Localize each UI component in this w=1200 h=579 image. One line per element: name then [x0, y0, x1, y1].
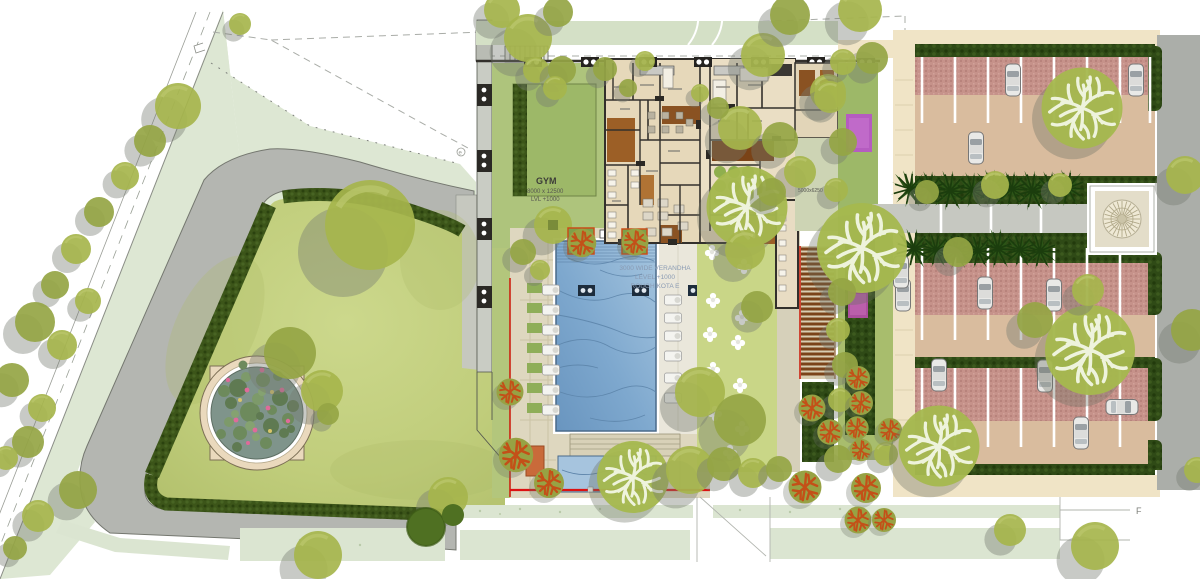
svg-text:3000 WIDE VERANDHA: 3000 WIDE VERANDHA — [619, 265, 691, 272]
svg-text:LVL +1000: LVL +1000 — [531, 197, 560, 203]
svg-text:ROUGH KOTA E: ROUGH KOTA E — [631, 283, 681, 290]
svg-text:8000 x 12500: 8000 x 12500 — [527, 189, 564, 195]
svg-text:LEVEL +1000: LEVEL +1000 — [635, 274, 675, 281]
svg-text:GYM: GYM — [536, 176, 557, 186]
svg-text:F: F — [1136, 506, 1142, 516]
